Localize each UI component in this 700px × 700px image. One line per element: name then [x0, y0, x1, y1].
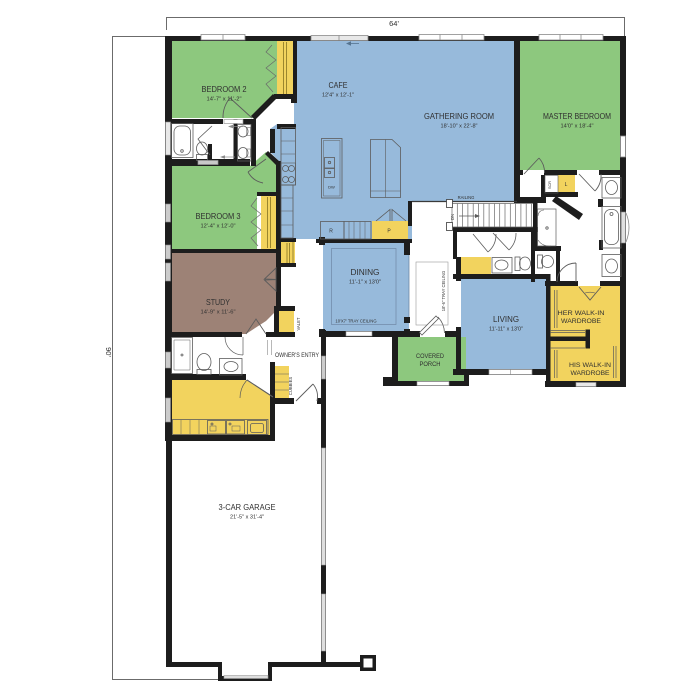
svg-text:PORCH: PORCH: [420, 361, 441, 368]
svg-text:18'-6" TRAY CEILING: 18'-6" TRAY CEILING: [441, 271, 446, 311]
svg-text:DN: DN: [450, 214, 455, 220]
svg-text:VALET: VALET: [296, 317, 301, 330]
svg-text:SCR: SCR: [548, 181, 552, 189]
svg-text:OWNER'S ENTRY: OWNER'S ENTRY: [275, 353, 319, 359]
svg-text:WARDROBE: WARDROBE: [561, 318, 601, 325]
svg-text:GATHERING ROOM: GATHERING ROOM: [424, 112, 494, 121]
svg-text:RAILING: RAILING: [458, 195, 475, 200]
svg-text:3-CAR GARAGE: 3-CAR GARAGE: [219, 503, 276, 512]
svg-text:14'-7" x 11'-2": 14'-7" x 11'-2": [207, 97, 242, 103]
svg-text:12'-4" x 12'-0": 12'-4" x 12'-0": [201, 224, 236, 230]
svg-text:DW: DW: [328, 185, 335, 190]
svg-text:MASTER BEDROOM: MASTER BEDROOM: [543, 112, 611, 121]
svg-text:HIS WALK-IN: HIS WALK-IN: [569, 362, 611, 369]
svg-text:LIVING: LIVING: [493, 315, 519, 324]
svg-text:11'-1" x 13'0": 11'-1" x 13'0": [349, 280, 381, 286]
svg-text:90': 90': [104, 347, 113, 357]
svg-text:CAFE: CAFE: [329, 81, 348, 90]
svg-text:DINING: DINING: [351, 268, 380, 277]
svg-text:14'-9" x 11'-6": 14'-9" x 11'-6": [201, 310, 236, 316]
svg-text:R: R: [329, 229, 333, 235]
svg-text:18'-10" x 22'-8": 18'-10" x 22'-8": [441, 124, 478, 130]
svg-text:64': 64': [389, 19, 399, 28]
svg-text:WARDROBE: WARDROBE: [571, 370, 610, 377]
svg-text:BEDROOM 3: BEDROOM 3: [196, 212, 241, 221]
svg-text:COVERED: COVERED: [416, 353, 444, 360]
svg-text:HER WALK-IN: HER WALK-IN: [558, 310, 605, 317]
svg-text:10'X7' TRAY CEILING: 10'X7' TRAY CEILING: [335, 319, 376, 324]
svg-text:21'-5" x 31'-4": 21'-5" x 31'-4": [230, 515, 264, 521]
svg-text:BEDROOM 2: BEDROOM 2: [202, 85, 247, 94]
svg-text:L: L: [565, 182, 568, 188]
svg-text:STUDY: STUDY: [206, 298, 230, 307]
svg-text:14'0" x 18'-4": 14'0" x 18'-4": [561, 124, 594, 130]
svg-text:12'4" x 12'-1": 12'4" x 12'-1": [322, 93, 354, 99]
svg-text:11'-11" x 13'0": 11'-11" x 13'0": [489, 327, 523, 333]
svg-text:CUBBIES: CUBBIES: [288, 377, 293, 396]
